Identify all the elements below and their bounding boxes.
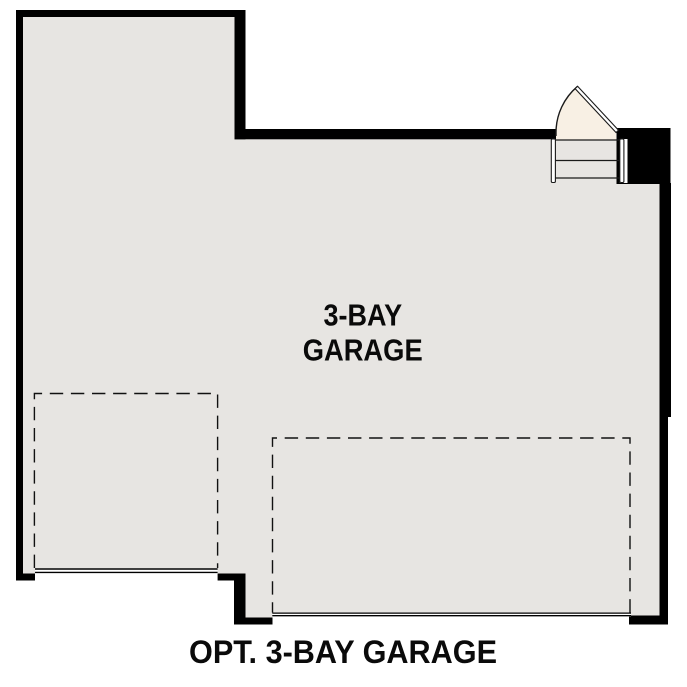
svg-text:GARAGE: GARAGE	[303, 332, 423, 367]
svg-text:3-BAY: 3-BAY	[324, 298, 403, 333]
svg-text:OPT. 3-BAY GARAGE: OPT. 3-BAY GARAGE	[189, 634, 497, 670]
